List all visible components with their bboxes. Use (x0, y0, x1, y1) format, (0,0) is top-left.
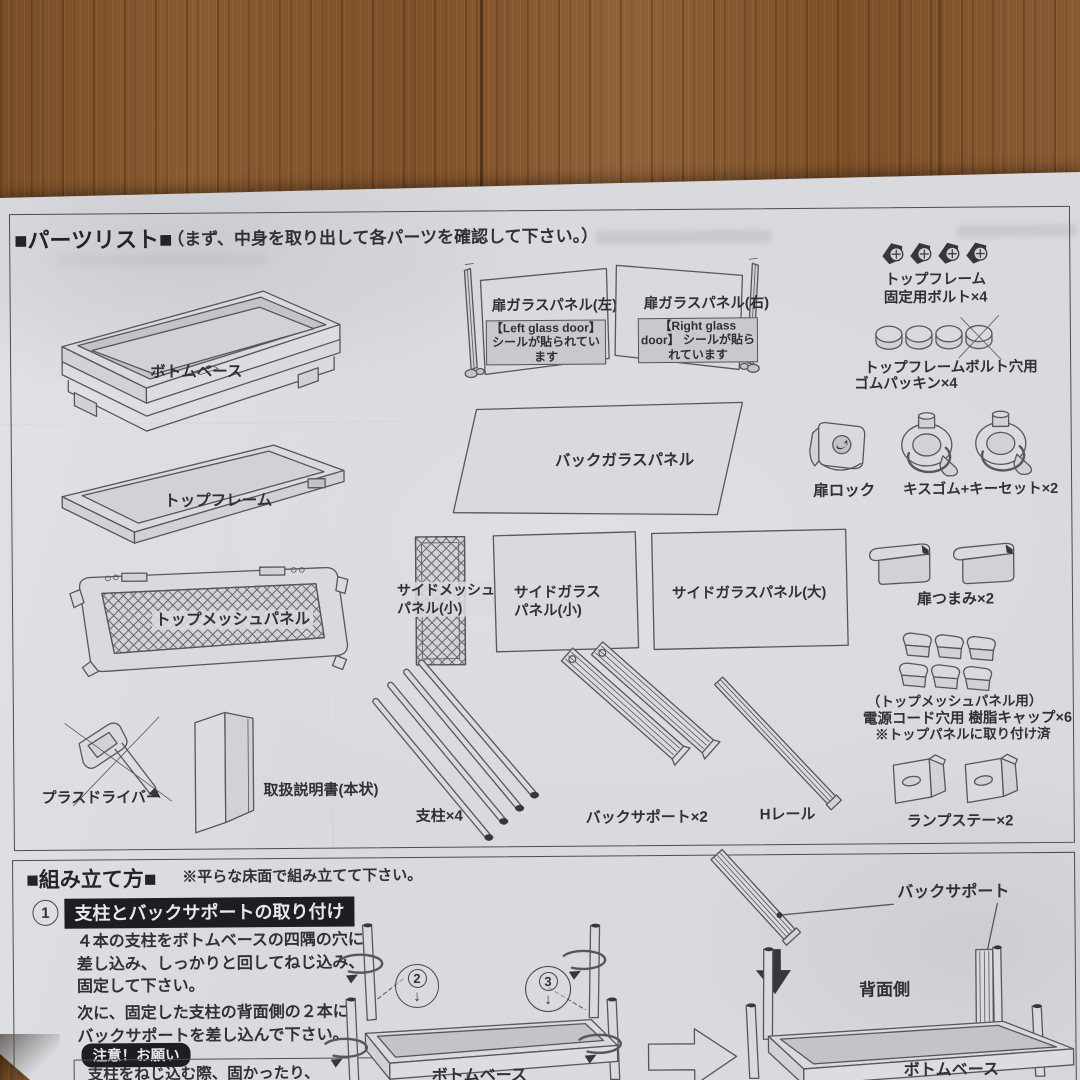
rear-side-caption: 背面側 (859, 979, 910, 1001)
door-knob-label: 扉つまみ×2 (917, 590, 994, 609)
manual-drawing (187, 706, 262, 839)
step1-number: 1 (32, 900, 58, 926)
suction-cup-drawing (971, 410, 1042, 477)
manual-label: 取扱説明書(本状) (263, 781, 378, 801)
back-supports-label: バックサポート×2 (586, 809, 708, 829)
callout-2: 2 ↓ (395, 964, 439, 1008)
door-glass-left-label: 扉ガラスパネル(左) (492, 296, 618, 315)
side-glass-large-label: サイドガラスパネル(大) (672, 584, 827, 603)
lamp-stay-drawing (957, 752, 1027, 813)
step1-paragraph-2: 次に、固定した支柱の背面側の２本に バックサポートを差し込んで下さい。 (77, 1002, 349, 1050)
assembly-title: ■組み立て方■ (26, 863, 157, 894)
lamp-stay-drawing (885, 753, 955, 814)
top-frame-label: トップフレーム (164, 491, 272, 511)
door-glass-right-sticker: 【Right glass door】 シールが貼られています (638, 317, 758, 363)
caution-line: 支柱をねじ込む際、固かったり、 (88, 1064, 320, 1080)
door-lock-label: 扉ロック (813, 481, 875, 501)
step1-title: 支柱とバックサポートの取り付け (64, 896, 354, 928)
posts-label: 支柱×4 (416, 808, 463, 827)
packing-label-2: ゴムパッキン×4 (854, 375, 957, 394)
photo-of-instruction-sheet: ■パーツリスト■ （まず、中身を取り出して各パーツを確認して下さい。） ボトムベ… (0, 0, 1080, 1080)
back-supports-drawing (535, 652, 688, 815)
top-mesh-panel-label: トップメッシュパネル (152, 610, 313, 631)
door-knob-drawing (950, 540, 1018, 589)
h-rail-drawing (701, 678, 844, 821)
assembly-illustration-1 (332, 889, 633, 1080)
assembly-illustration-2 (697, 851, 1080, 1079)
screwdriver-label: プラスドライバー (41, 789, 161, 809)
parts-list-subtitle: （まず、中身を取り出して各パーツを確認して下さい。） (167, 226, 598, 251)
door-glass-left-sticker: 【Left glass door】 シールが貼られています (486, 319, 606, 365)
back-glass-label: バックガラスパネル (555, 451, 694, 471)
callout-3-number: 3 (538, 971, 557, 990)
side-mesh-label: サイドメッシュ パネル(小) (394, 581, 498, 617)
bottom-base-caption-2: ボトムベース (904, 1060, 999, 1080)
h-rail-label: Hレール (760, 806, 816, 825)
resin-caps-label-3: ※トップパネルに取り付け済 (875, 726, 1051, 744)
lamp-stay-label: ランプステー×2 (907, 812, 1014, 832)
bottom-base-label: ボトムベース (150, 362, 242, 382)
bolts-label: トップフレーム 固定用ボルト×4 (865, 270, 1005, 307)
packing-drawing (875, 321, 1001, 362)
suction-cup-drawing (897, 412, 968, 479)
callout-2-number: 2 (407, 968, 426, 987)
parts-list-title: ■パーツリスト■ (14, 222, 172, 255)
door-lock-drawing (805, 418, 871, 481)
resin-caps-drawing (898, 629, 1002, 692)
bolts-drawing (879, 238, 993, 271)
door-glass-right-label: 扉ガラスパネル(右) (644, 294, 770, 313)
door-knob-drawing (866, 541, 934, 590)
assembly-note: ※平らな床面で組み立てて下さい。 (182, 867, 422, 888)
step1-paragraph-1: ４本の支柱をボトムベースの四隅の穴に 差し込み、しっかりと回してねじ込み、 固定… (77, 929, 365, 999)
suction-cup-label: キスゴム+キーセット×2 (903, 480, 1058, 499)
callout-3-arrow: ↓ (544, 991, 552, 1006)
bottom-base-caption-1: ボトムベース (432, 1066, 527, 1080)
back-support-caption: バックサポート (897, 882, 1009, 903)
side-glass-small-label: サイドガラス パネル(小) (514, 584, 601, 621)
callout-2-arrow: ↓ (413, 988, 421, 1003)
callout-3: 3 ↓ (525, 966, 571, 1012)
sheet-content: ■パーツリスト■ （まず、中身を取り出して各パーツを確認して下さい。） ボトムベ… (0, 0, 1080, 1080)
